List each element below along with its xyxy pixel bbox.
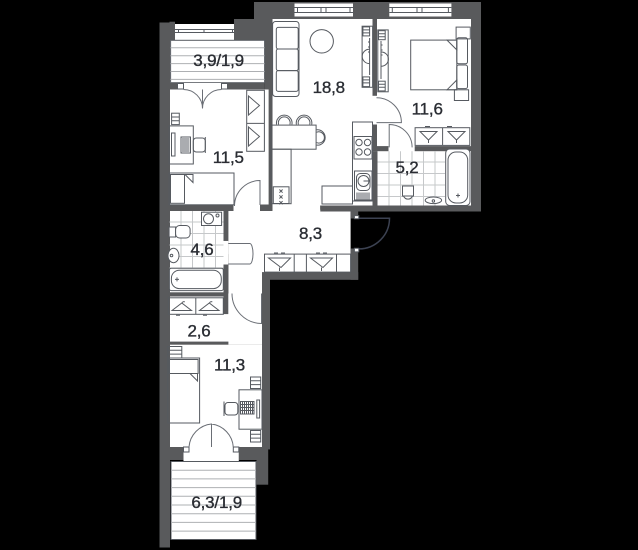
svg-text:3,9/1,9: 3,9/1,9 [193,51,244,70]
svg-text:5,2: 5,2 [395,158,418,177]
svg-text:2,6: 2,6 [187,322,210,341]
svg-text:8,3: 8,3 [299,224,322,243]
svg-text:6,3/1,9: 6,3/1,9 [191,493,242,512]
svg-text:11,6: 11,6 [412,100,443,119]
svg-text:18,8: 18,8 [313,78,345,97]
svg-text:11,3: 11,3 [214,356,245,375]
svg-text:11,5: 11,5 [213,148,244,167]
svg-text:4,6: 4,6 [190,240,213,259]
